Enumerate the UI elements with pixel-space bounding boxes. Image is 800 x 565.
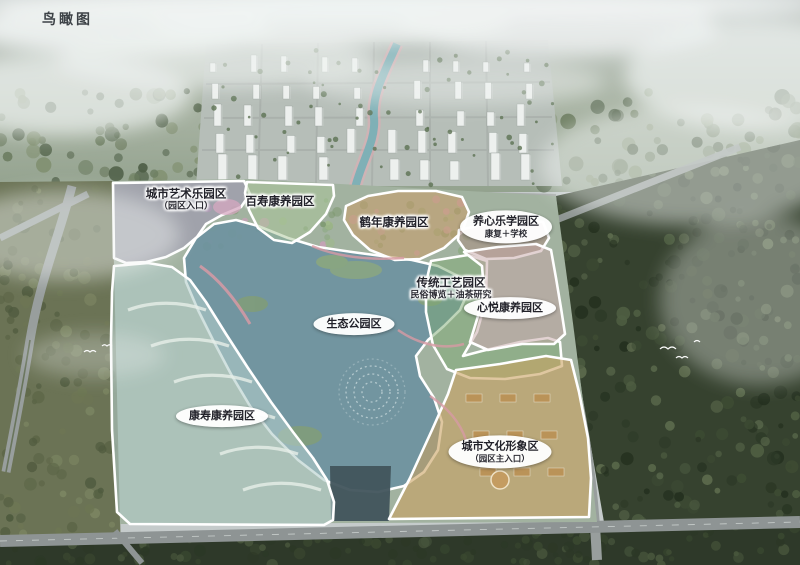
zone-label-text: 养心乐学园区 [473,214,539,228]
zone-label-traditional-crafts: 传统工艺园区 民俗博览＋油茶研究 [410,276,491,303]
zone-label-text: 生态公园区 [327,317,382,331]
page-title: 鸟瞰图 [42,9,93,29]
zone-label-text: 百寿康养园区 [246,194,315,208]
zone-label-kangshou-wellness: 康寿康养园区 [176,405,268,427]
zone-label-text: 康寿康养园区 [189,409,255,423]
zone-sublabel-text: 康复＋学校 [473,229,539,240]
zone-label-city-culture-image: 城市文化形象区 （园区主入口） [449,435,552,468]
aerial-masterplan-rendering: 鸟瞰图 城市艺术乐园区 （园区入口） 百寿康养园区 鹤年康养园区 养心乐学园区 … [0,0,800,565]
zone-label-text: 城市艺术乐园区 [146,187,227,201]
rendered-scene [0,0,800,565]
zone-label-xinyue-wellness: 心悦康养园区 [464,297,556,319]
zone-label-text: 心悦康养园区 [477,301,543,315]
shaded-grove [330,466,391,521]
zone-label-eco-park: 生态公园区 [314,313,395,335]
zone-label-henian-wellness: 鹤年康养园区 [360,215,429,229]
zone-label-city-art-park: 城市艺术乐园区 （园区入口） [146,187,227,214]
zone-sublabel-text: （园区入口） [146,202,227,213]
zone-sublabel-text: （园区主入口） [462,454,539,465]
zone-label-text: 传统工艺园区 [410,276,491,290]
zone-label-baishou-wellness: 百寿康养园区 [246,194,315,208]
zone-label-yangxin-learning: 养心乐学园区 康复＋学校 [460,210,552,243]
zone-label-text: 鹤年康养园区 [360,215,429,229]
zone-label-text: 城市文化形象区 [462,439,539,453]
